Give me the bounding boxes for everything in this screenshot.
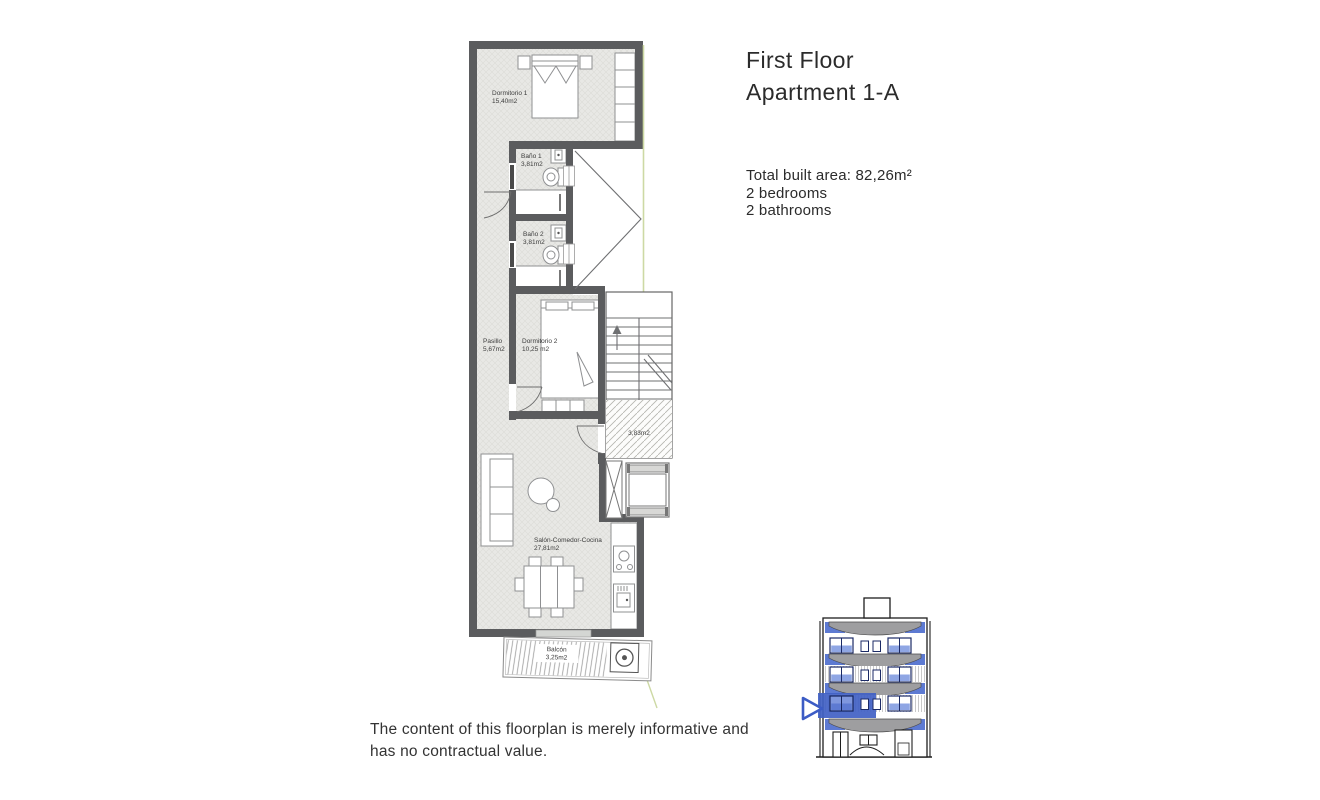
label-pasillo-area: 5,67m2	[483, 346, 505, 353]
label-dormitorio2-name: Dormitorio 2	[522, 338, 558, 345]
toilet	[543, 168, 559, 186]
label-bano2-area: 3,81m2	[523, 239, 545, 246]
label-bano1-area: 3,81m2	[521, 161, 543, 168]
label-dormitorio2-area: 10,25 m2	[522, 346, 549, 353]
detail-total-area: Total built area: 82,26m²	[746, 167, 912, 185]
label-pasillo-name: Pasillo	[483, 338, 503, 345]
label-salon-area: 27,81m2	[534, 545, 560, 552]
boundary-line	[646, 677, 657, 708]
detail-bedrooms: 2 bedrooms	[746, 185, 912, 203]
side-table	[547, 499, 560, 512]
floorplan-drawing: Balcón 3,25m2 Dormitorio 1 15,40m2 Baño …	[0, 0, 1320, 800]
title-line-2: Apartment 1-A	[746, 76, 900, 108]
roof-structure	[864, 598, 890, 618]
kitchen-counter	[611, 523, 637, 629]
landing	[606, 400, 672, 458]
pocket-door	[510, 243, 514, 267]
label-balcon-name: Balcón	[547, 646, 567, 654]
label-dormitorio1-area: 15,40m2	[492, 98, 518, 105]
dining-table	[524, 566, 574, 608]
double-bed	[532, 55, 578, 118]
label-salon-name: Salón-Comedor-Cocina	[534, 537, 602, 544]
elevator	[606, 461, 669, 518]
nightstand	[580, 56, 592, 69]
toilet	[543, 246, 559, 264]
balcony: Balcón 3,25m2	[503, 637, 652, 681]
label-dormitorio1-name: Dormitorio 1	[492, 90, 528, 97]
building-elevation	[803, 598, 932, 757]
label-bano2-name: Baño 2	[523, 231, 544, 238]
sofa	[481, 454, 513, 546]
balcony-glass-door	[536, 630, 591, 637]
detail-bathrooms: 2 bathrooms	[746, 202, 912, 220]
label-landing-area: 3,83m2	[628, 430, 650, 437]
nightstand	[518, 56, 530, 69]
label-balcon-area: 3,25m2	[546, 654, 568, 662]
pocket-door	[510, 165, 514, 189]
lightwell-void	[575, 151, 641, 289]
wardrobe	[615, 53, 635, 141]
floorplan-page: Balcón 3,25m2 Dormitorio 1 15,40m2 Baño …	[0, 0, 1320, 800]
title-line-1: First Floor	[746, 44, 900, 76]
page-title: First Floor Apartment 1-A	[746, 44, 900, 108]
apartment-details: Total built area: 82,26m² 2 bedrooms 2 b…	[746, 167, 912, 220]
disclaimer-text: The content of this floorplan is merely …	[370, 719, 772, 762]
label-bano1-name: Baño 1	[521, 153, 542, 160]
